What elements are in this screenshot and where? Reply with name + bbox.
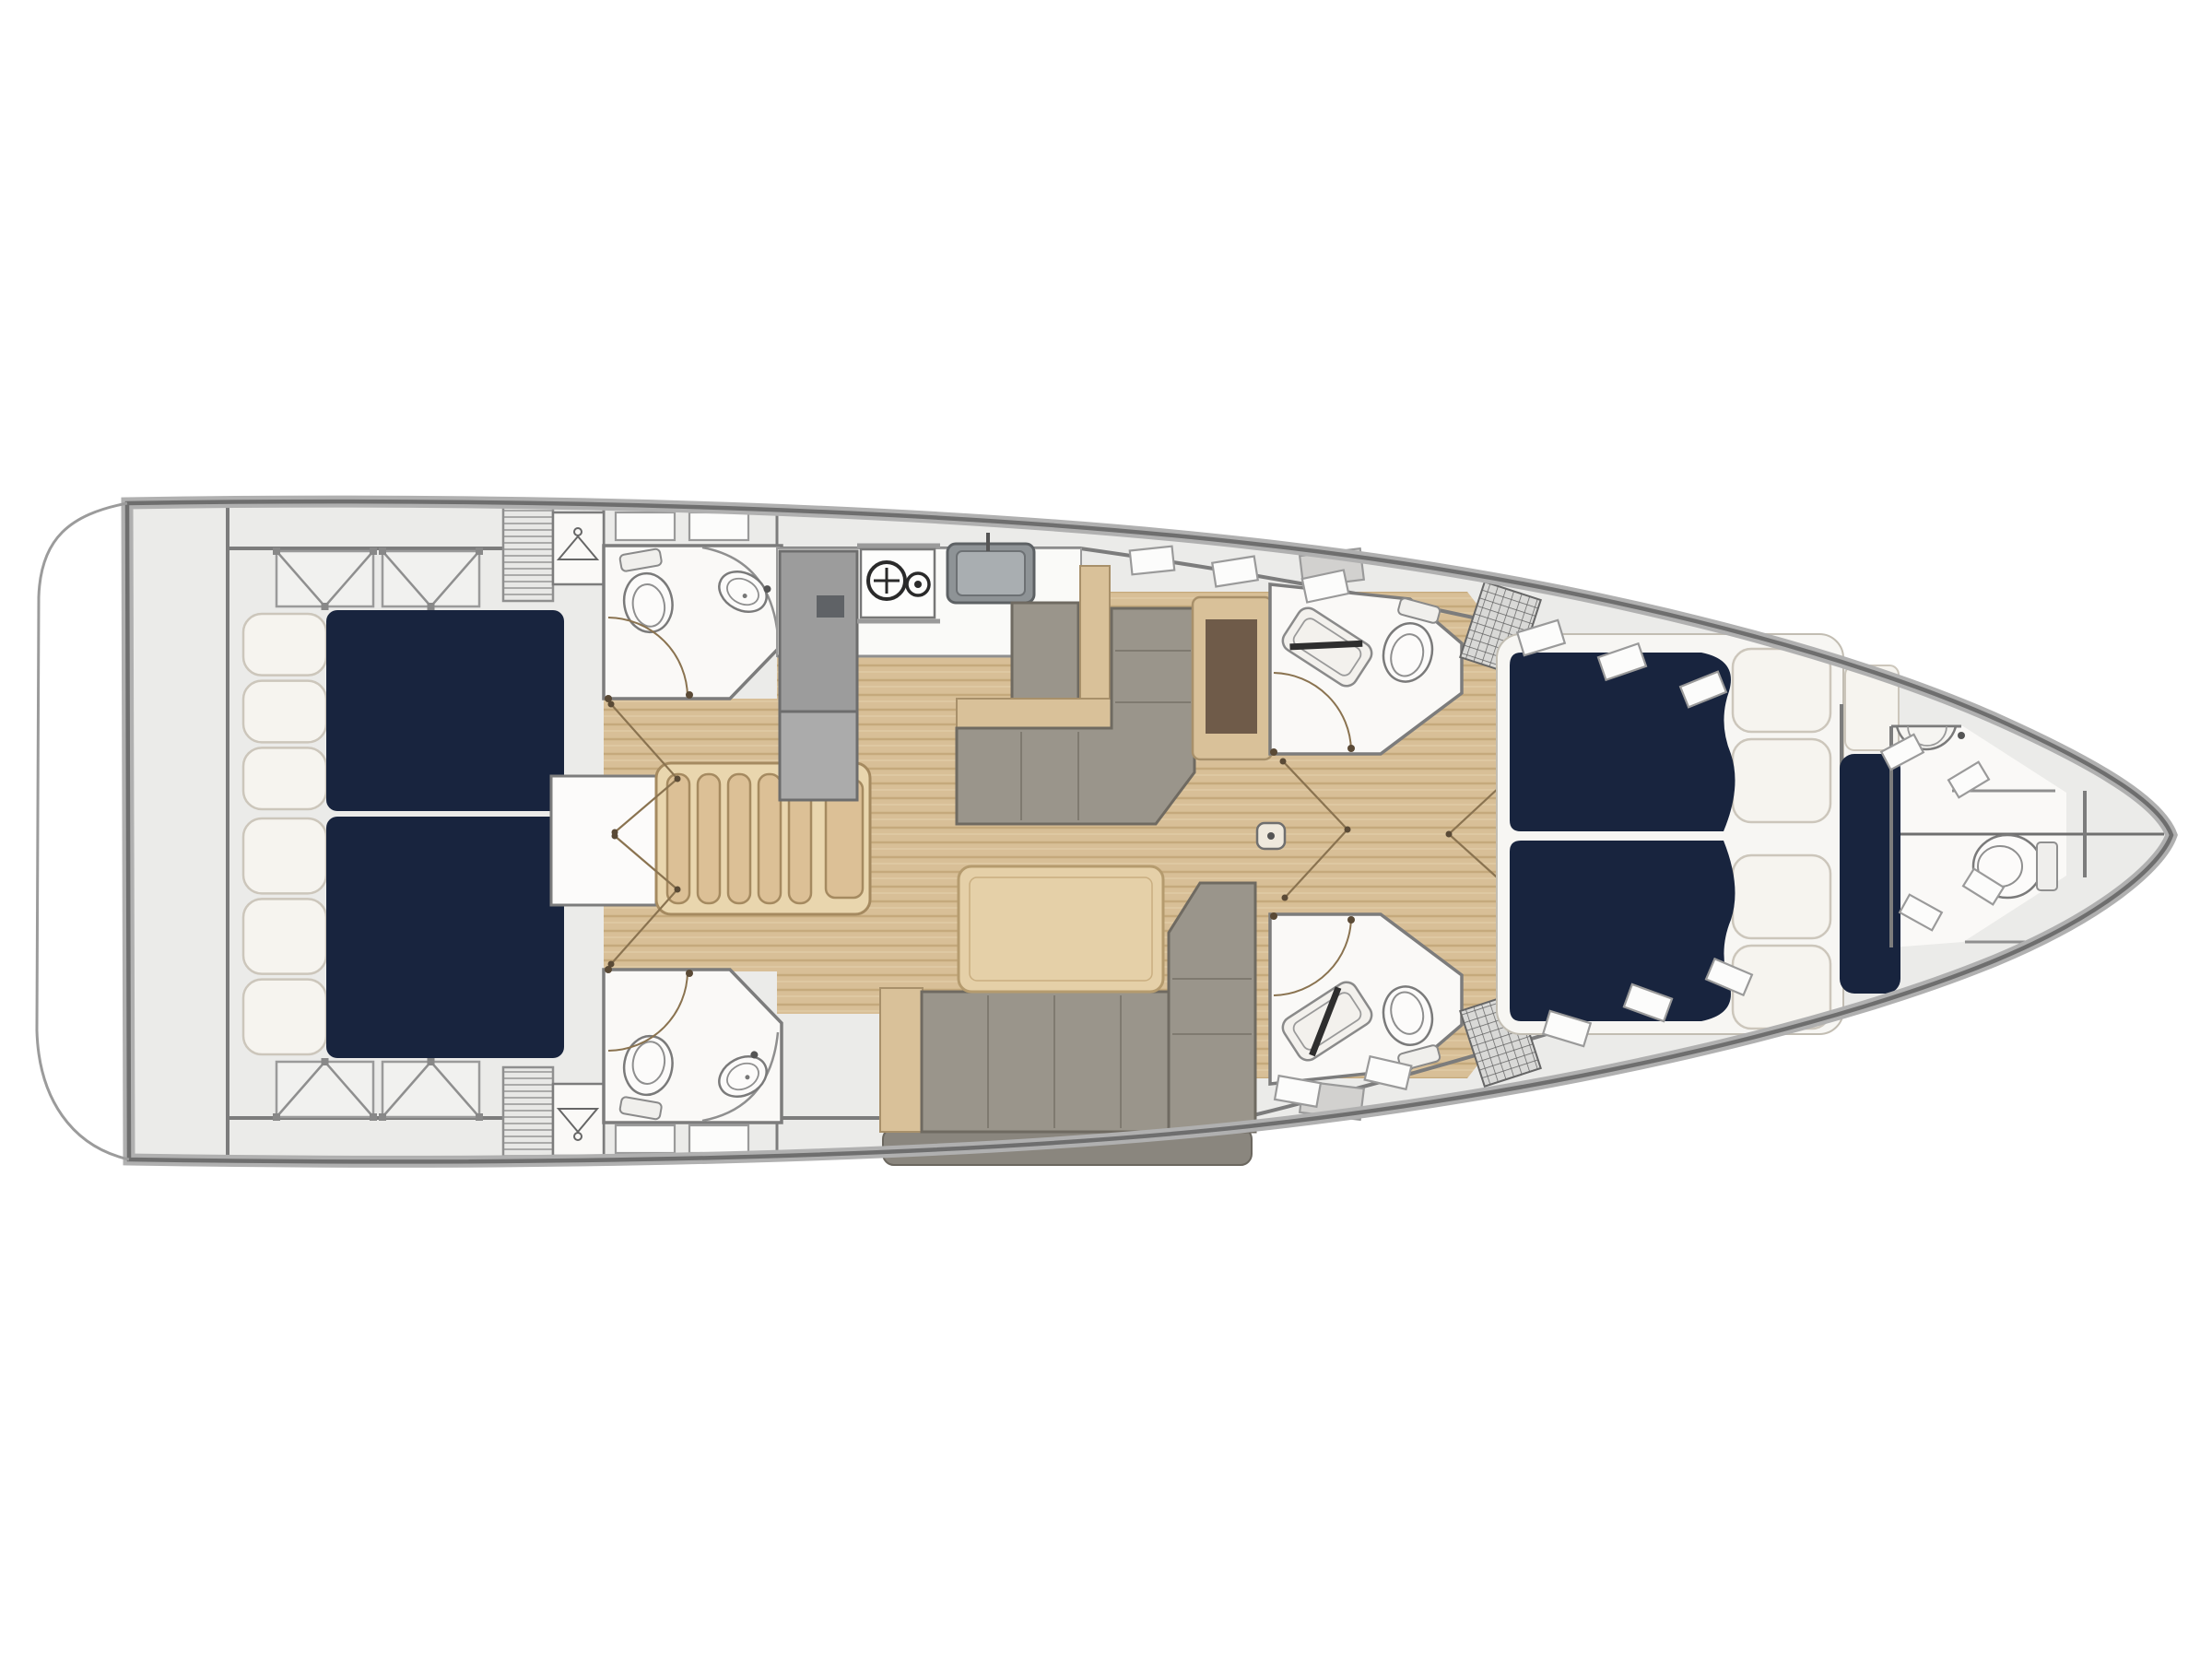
deck-hatch-stbd-2 bbox=[689, 1125, 748, 1153]
deck-hatch-port-1 bbox=[1130, 547, 1174, 575]
yacht-floorplan bbox=[0, 0, 2212, 1659]
pillow-owner-3 bbox=[1733, 855, 1830, 938]
wardrobe-aft-port bbox=[503, 505, 553, 601]
locker-aft-stbd-2 bbox=[379, 1058, 483, 1121]
bed-aft-stbd bbox=[326, 817, 564, 1058]
swim-platform bbox=[37, 503, 129, 1159]
burner-small-center bbox=[914, 581, 922, 588]
toilet-bow-tank bbox=[2037, 842, 2057, 890]
galley-cabinet bbox=[780, 712, 857, 800]
pillow-owner-2 bbox=[1733, 739, 1830, 822]
pillows-aft-stbd bbox=[243, 818, 326, 1054]
fridge bbox=[780, 551, 857, 712]
pillow-owner-1 bbox=[1733, 649, 1830, 732]
faucet-bow bbox=[1958, 732, 1965, 739]
deck-hatch-aft-port-1 bbox=[616, 512, 675, 540]
floorplan-layers bbox=[37, 501, 2171, 1165]
pillows-aft-port bbox=[243, 614, 326, 809]
sofa-stbd-armrest bbox=[880, 988, 923, 1132]
deck-hatch-stbd-1 bbox=[616, 1125, 675, 1153]
bed-owner-stbd bbox=[1510, 841, 1735, 1021]
wardrobe-aft-stbd bbox=[503, 1067, 553, 1163]
hanging-locker-aft-stbd bbox=[553, 1084, 604, 1156]
sofa-port-backrest bbox=[957, 699, 1112, 728]
companionway-passage bbox=[551, 776, 656, 905]
stove bbox=[861, 549, 935, 618]
locker-aft-port-2 bbox=[379, 547, 483, 610]
deck-hatch-port-2 bbox=[1212, 557, 1258, 587]
hanging-locker-aft-port bbox=[553, 512, 604, 584]
yacht-floorplan-page bbox=[0, 0, 2212, 1659]
sofa-stbd-bench bbox=[922, 992, 1193, 1132]
side-table-top bbox=[1206, 619, 1257, 734]
sofa-stbd-chaise bbox=[1169, 883, 1255, 1132]
locker-aft-stbd-1 bbox=[273, 1058, 377, 1121]
mast-dot bbox=[1267, 832, 1275, 840]
bed-aft-port bbox=[326, 610, 564, 811]
locker-aft-port-1 bbox=[273, 547, 377, 610]
deck-hatch-aft-port-2 bbox=[689, 512, 748, 540]
galley-sink-basin bbox=[957, 551, 1025, 595]
salon-table bbox=[959, 866, 1163, 992]
fridge-handle bbox=[817, 595, 844, 618]
